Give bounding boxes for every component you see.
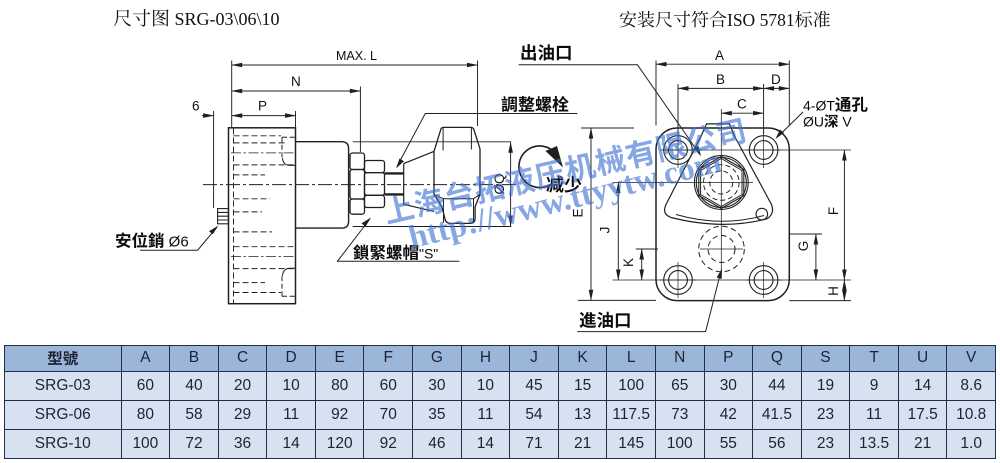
svg-text:出油口: 出油口 [520,40,573,65]
svg-text:MAX. L: MAX. L [336,49,377,63]
svg-text:安位銷 Ø6: 安位銷 Ø6 [115,228,189,252]
svg-text:進油口: 進油口 [579,308,632,333]
svg-text:A: A [715,48,724,63]
svg-text:6: 6 [192,99,200,114]
svg-text:B: B [716,72,725,87]
svg-text:P: P [258,99,267,114]
svg-text:H: H [826,286,841,296]
svg-text:F: F [826,207,841,215]
svg-text:調整螺栓: 調整螺栓 [501,91,569,116]
svg-text:G: G [796,241,811,252]
svg-text:ØU深 V: ØU深 V [803,111,852,132]
svg-text:J: J [598,227,613,234]
svg-text:K: K [621,258,636,267]
svg-text:D: D [771,72,781,87]
svg-text:N: N [291,74,301,89]
